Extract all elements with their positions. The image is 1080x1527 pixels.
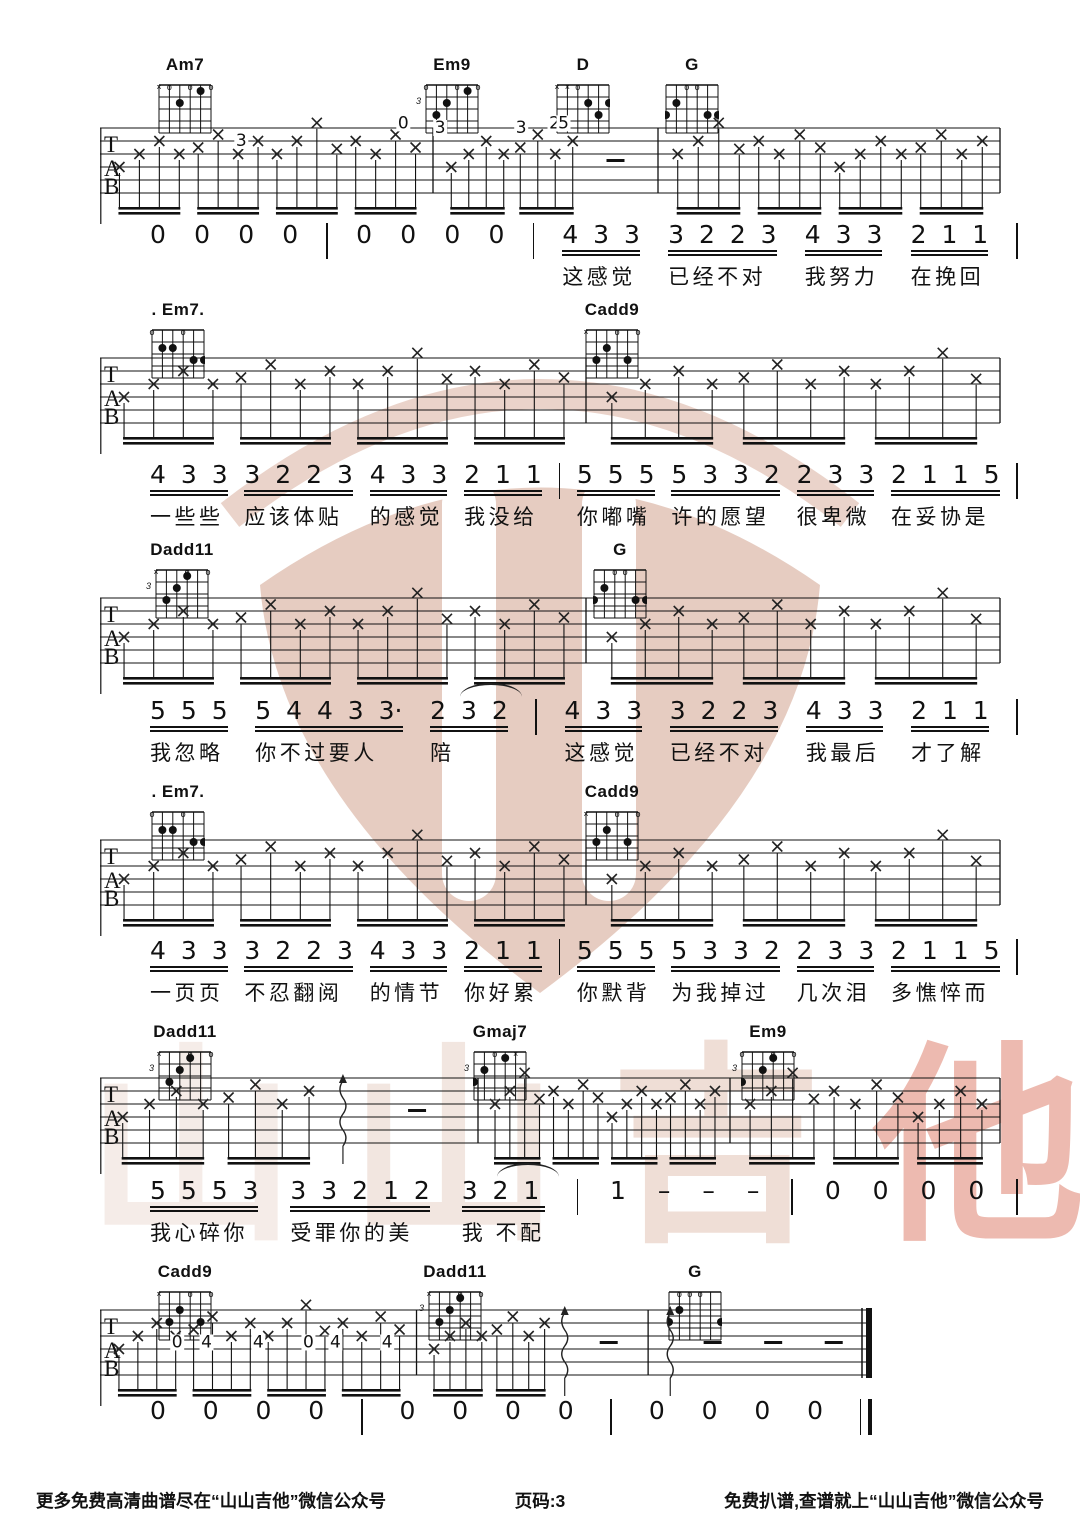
- melody-group: 4 3 3我最后: [806, 698, 884, 767]
- melody-group: 4 3 3的情节: [370, 938, 448, 1007]
- melody-group: 2 1 1 5在妥协是: [891, 462, 999, 531]
- jianpu-numbers: 0: [356, 222, 372, 248]
- jianpu-numbers: 4 3 3: [565, 698, 643, 724]
- lyric-text: 很卑微: [797, 501, 875, 531]
- finger-dot: [672, 99, 680, 107]
- melody-group: 0: [702, 1398, 718, 1424]
- hold-dash: [764, 1341, 782, 1344]
- jianpu-numbers: 0: [150, 222, 166, 248]
- tab-fret-number: 5: [558, 113, 569, 133]
- jianpu-numbers: 5 5 5: [150, 698, 228, 724]
- jianpu-numbers: 4 3 3: [370, 938, 448, 964]
- svg-text:B: B: [104, 174, 119, 199]
- jianpu-numbers: 3 2 2 3: [668, 222, 776, 248]
- barline: [361, 1399, 363, 1435]
- melody-group: 0: [968, 1178, 984, 1204]
- melody-group: 3 2 2 3不忍翻阅: [244, 938, 352, 1007]
- jianpu-numbers: 4 3 3: [150, 462, 228, 488]
- melody-group: 0: [238, 222, 254, 248]
- jianpu-numbers: 3 2 2 3: [244, 938, 352, 964]
- tab-staff: TAB: [100, 338, 1006, 456]
- melody-group: 5 4 4 3 3·你不过要人: [255, 698, 402, 767]
- lyric-text: 我心碎你: [150, 1217, 258, 1247]
- jianpu-numbers: 2 3 3: [797, 462, 875, 488]
- melody-group: 4 3 3一些些: [150, 462, 228, 531]
- chord-name: Dadd11: [153, 1022, 217, 1042]
- lyric-text: 陪: [430, 737, 508, 767]
- barline: [577, 1179, 579, 1215]
- jianpu-numbers: 0: [921, 1178, 937, 1204]
- jianpu-numbers: 0: [505, 1398, 521, 1424]
- melody-group: 0: [873, 1178, 889, 1204]
- string-markers: oo: [665, 83, 719, 92]
- lyric-text: 你默背: [577, 977, 655, 1007]
- svg-text:T: T: [104, 1082, 118, 1107]
- string-markers: oo: [151, 810, 205, 819]
- svg-text:B: B: [104, 886, 119, 911]
- tab-staff: TAB: [100, 578, 1006, 696]
- tab-fret-number: 3: [435, 118, 446, 138]
- chord-name: Dadd11: [150, 540, 214, 560]
- lyric-text: 我没给: [464, 501, 542, 531]
- string-markers: ×oo: [585, 810, 639, 819]
- melody-group: 0: [444, 222, 460, 248]
- hold-dash: [600, 1341, 618, 1344]
- tab-fret-number: 4: [253, 1333, 264, 1353]
- chord-name: . Em7.: [146, 782, 210, 802]
- hold-dash: [408, 1109, 426, 1112]
- jianpu-numbers: 0: [807, 1398, 823, 1424]
- jianpu-numbers: 0: [203, 1398, 219, 1424]
- chord-name: G: [660, 55, 724, 75]
- melody-group: 3 2 2 3已经不对: [668, 222, 776, 291]
- jianpu-numbers: 2 1 1 5: [891, 938, 999, 964]
- svg-text:T: T: [104, 1314, 118, 1339]
- string-markers: oo: [593, 568, 647, 577]
- jianpu-numbers: 0: [452, 1398, 468, 1424]
- melody-group: 0: [399, 1398, 415, 1424]
- lyric-text: 不忍翻阅: [244, 977, 352, 1007]
- chord-name: G: [663, 1262, 727, 1282]
- barline: [610, 1399, 612, 1435]
- lyric-text: 你不过要人: [255, 737, 402, 767]
- melody-group: 4 3 3这感觉: [565, 698, 643, 767]
- tab-staff: TAB: [100, 820, 1006, 938]
- lyric-text: 你嘟嘴: [577, 501, 655, 531]
- svg-text:T: T: [104, 602, 118, 627]
- finger-dot: [584, 99, 592, 107]
- lyric-text: 应该体贴: [244, 501, 352, 531]
- melody-group: 2 1 1才了解: [911, 698, 989, 767]
- vocal-line: 4 3 3一些些3 2 2 3应该体贴4 3 3的感觉2 1 1我没给5 5 5…: [150, 462, 1018, 531]
- tab-staff: TAB302335: [100, 108, 1006, 226]
- melody-group: 0: [282, 222, 298, 248]
- jianpu-numbers: 4 3 3: [150, 938, 228, 964]
- melody-group: 0: [921, 1178, 937, 1204]
- jianpu-numbers: 4 3 3: [805, 222, 883, 248]
- melody-group: 0: [400, 222, 416, 248]
- melody-group: 0: [150, 1398, 166, 1424]
- lyric-text: 这感觉: [565, 737, 643, 767]
- chord-name: Dadd11: [423, 1262, 487, 1282]
- chord-name: Em9: [420, 55, 484, 75]
- jianpu-numbers: 0: [558, 1398, 574, 1424]
- tab-staff: TAB044044: [100, 1290, 878, 1408]
- chord-name: Em9: [736, 1022, 800, 1042]
- tab-staff: TAB: [100, 1058, 1006, 1176]
- lyric-text: 为我掉过: [671, 977, 779, 1007]
- jianpu-numbers: 0: [649, 1398, 665, 1424]
- melody-group: 2 3 3很卑微: [797, 462, 875, 531]
- melody-group: 2 3 2陪: [430, 698, 508, 767]
- lyric-text: 在挽回: [911, 261, 989, 291]
- melody-group: 3 2 2 3已经不对: [670, 698, 778, 767]
- jianpu-numbers: –: [702, 1178, 715, 1204]
- barline: [1016, 939, 1018, 975]
- finger-dot: [605, 99, 610, 107]
- jianpu-numbers: 5 3 3 2: [671, 462, 779, 488]
- melody-group: 0: [194, 222, 210, 248]
- jianpu-numbers: 3 2 2 3: [670, 698, 778, 724]
- final-barline: [860, 1399, 872, 1435]
- sheet-music-page: 山山吉他 Am7×oooEm9ooo3D××oGooTAB30233500000…: [0, 0, 1080, 1527]
- jianpu-numbers: –: [658, 1178, 671, 1204]
- melody-group: 0: [649, 1398, 665, 1424]
- melody-group: 0: [558, 1398, 574, 1424]
- jianpu-numbers: 0: [238, 222, 254, 248]
- string-markers: ooo: [425, 83, 479, 92]
- tab-fret-number: 4: [201, 1333, 212, 1353]
- jianpu-numbers: 0: [194, 222, 210, 248]
- melody-group: 3 2 2 3应该体贴: [244, 462, 352, 531]
- barline: [1016, 463, 1018, 499]
- chord-name: Am7: [153, 55, 217, 75]
- lyric-text: 多憔悴而: [891, 977, 999, 1007]
- jianpu-numbers: 0: [702, 1398, 718, 1424]
- jianpu-numbers: 5 4 4 3 3·: [255, 698, 402, 724]
- vocal-line: 000000000000: [150, 1398, 872, 1435]
- score-content: Am7×oooEm9ooo3D××oGooTAB302335000000004 …: [0, 0, 1080, 1527]
- lyric-text: 一页页: [150, 977, 228, 1007]
- melody-group: 5 3 3 2为我掉过: [671, 938, 779, 1007]
- barline: [1016, 699, 1018, 735]
- lyric-text: 受罪你的美: [290, 1217, 429, 1247]
- jianpu-numbers: 2 3 3: [797, 938, 875, 964]
- lyric-text: 一些些: [150, 501, 228, 531]
- hold-dash: [607, 159, 625, 162]
- melody-group: –: [747, 1178, 760, 1204]
- jianpu-numbers: 2 1 1: [464, 938, 542, 964]
- lyric-text: 许的愿望: [671, 501, 779, 531]
- lyric-text: 这感觉: [562, 261, 640, 291]
- melody-group: 0: [754, 1398, 770, 1424]
- jianpu-numbers: 5 5 5: [577, 938, 655, 964]
- hold-dash: [825, 1341, 843, 1344]
- vocal-line: 5 5 5 3我心碎你3 3 2 1 2受罪你的美3 2 1我 不配1–––00…: [150, 1178, 1018, 1247]
- lyric-text: 我努力: [805, 261, 883, 291]
- melody-group: 0: [203, 1398, 219, 1424]
- jianpu-numbers: 2 1 1 5: [891, 462, 999, 488]
- melody-group: 2 1 1我没给: [464, 462, 542, 531]
- melody-group: 5 5 5你嘟嘴: [577, 462, 655, 531]
- jianpu-numbers: 0: [256, 1398, 272, 1424]
- jianpu-numbers: 4 3 3: [806, 698, 884, 724]
- vocal-line: 4 3 3一页页3 2 2 3不忍翻阅4 3 3的情节2 1 1你好累5 5 5…: [150, 938, 1018, 1007]
- jianpu-numbers: 2 3 2: [430, 698, 508, 724]
- svg-text:B: B: [104, 1356, 119, 1381]
- melody-group: 0: [488, 222, 504, 248]
- jianpu-numbers: 0: [488, 222, 504, 248]
- jianpu-numbers: 0: [400, 222, 416, 248]
- jianpu-numbers: 0: [825, 1178, 841, 1204]
- jianpu-numbers: 2 1 1: [911, 222, 989, 248]
- jianpu-numbers: 0: [282, 222, 298, 248]
- string-markers: ×oo: [155, 568, 209, 577]
- string-markers: oo: [151, 328, 205, 337]
- jianpu-numbers: 3 2 2 3: [244, 462, 352, 488]
- svg-text:B: B: [104, 1124, 119, 1149]
- chord-name: Cadd9: [153, 1262, 217, 1282]
- jianpu-numbers: 3 2 1: [462, 1178, 545, 1204]
- melody-group: 0: [150, 222, 166, 248]
- melody-group: 0: [807, 1398, 823, 1424]
- jianpu-numbers: 0: [968, 1178, 984, 1204]
- barline: [559, 939, 561, 975]
- jianpu-numbers: 4 3 3: [562, 222, 640, 248]
- finger-dot: [443, 99, 451, 107]
- melody-group: 3 2 1我 不配: [462, 1178, 545, 1247]
- barline: [559, 463, 561, 499]
- melody-group: 2 1 1在挽回: [911, 222, 989, 291]
- jianpu-numbers: 0: [150, 1398, 166, 1424]
- lyric-text: 才了解: [911, 737, 989, 767]
- tab-fret-number: 0: [398, 113, 409, 133]
- melody-group: 2 1 1你好累: [464, 938, 542, 1007]
- chord-name: G: [588, 540, 652, 560]
- melody-group: 0: [356, 222, 372, 248]
- jianpu-numbers: –: [747, 1178, 760, 1204]
- jianpu-numbers: 5 3 3 2: [671, 938, 779, 964]
- vocal-line: 5 5 5我忽略5 4 4 3 3·你不过要人2 3 2陪4 3 3这感觉3 2…: [150, 698, 1018, 767]
- melody-group: 3 3 2 1 2受罪你的美: [290, 1178, 429, 1247]
- melody-group: –: [702, 1178, 715, 1204]
- jianpu-numbers: 0: [308, 1398, 324, 1424]
- barline: [535, 699, 537, 735]
- tab-fret-number: 4: [330, 1333, 341, 1353]
- jianpu-numbers: 3 3 2 1 2: [290, 1178, 429, 1204]
- svg-text:B: B: [104, 644, 119, 669]
- chord-name: . Em7.: [146, 300, 210, 320]
- melody-group: 4 3 3这感觉: [562, 222, 640, 291]
- jianpu-numbers: 5 5 5: [577, 462, 655, 488]
- finger-dot: [176, 99, 184, 107]
- jianpu-numbers: 1: [610, 1178, 626, 1204]
- chord-name: Gmaj7: [468, 1022, 532, 1042]
- jianpu-numbers: 5 5 5 3: [150, 1178, 258, 1204]
- svg-text:T: T: [104, 132, 118, 157]
- jianpu-numbers: 2 1 1: [464, 462, 542, 488]
- svg-text:B: B: [104, 404, 119, 429]
- chord-name: Cadd9: [580, 782, 644, 802]
- lyric-text: 的感觉: [370, 501, 448, 531]
- melody-group: 5 3 3 2许的愿望: [671, 462, 779, 531]
- melody-group: 0: [825, 1178, 841, 1204]
- melody-group: 5 5 5 3我心碎你: [150, 1178, 258, 1247]
- barline: [533, 223, 535, 259]
- lyric-text: 你好累: [464, 977, 542, 1007]
- lyric-text: 几次泪: [797, 977, 875, 1007]
- jianpu-numbers: 0: [873, 1178, 889, 1204]
- barline: [326, 223, 328, 259]
- lyric-text: 已经不对: [670, 737, 778, 767]
- string-markers: ×ooo: [158, 83, 212, 92]
- fret-label: 3: [416, 96, 421, 106]
- jianpu-numbers: 0: [399, 1398, 415, 1424]
- melody-group: 5 5 5你默背: [577, 938, 655, 1007]
- tab-fret-number: 0: [172, 1333, 183, 1353]
- jianpu-numbers: 0: [444, 222, 460, 248]
- tab-fret-number: 0: [303, 1333, 314, 1353]
- melody-group: 0: [308, 1398, 324, 1424]
- barline: [791, 1179, 793, 1215]
- barline: [1016, 1179, 1018, 1215]
- lyric-text: 我 不配: [462, 1217, 545, 1247]
- melody-group: –: [658, 1178, 671, 1204]
- tab-fret-number: 3: [236, 131, 247, 151]
- jianpu-numbers: 4 3 3: [370, 462, 448, 488]
- svg-text:T: T: [104, 844, 118, 869]
- lyric-text: 在妥协是: [891, 501, 999, 531]
- string-markers: ××o: [556, 83, 610, 92]
- melody-group: 4 3 3的感觉: [370, 462, 448, 531]
- jianpu-numbers: 0: [754, 1398, 770, 1424]
- melody-group: 0: [505, 1398, 521, 1424]
- melody-group: 4 3 3一页页: [150, 938, 228, 1007]
- melody-group: 5 5 5我忽略: [150, 698, 228, 767]
- vocal-line: 000000004 3 3这感觉3 2 2 3已经不对4 3 3我努力2 1 1…: [150, 222, 1018, 291]
- lyric-text: 已经不对: [668, 261, 776, 291]
- melody-group: 2 1 1 5多憔悴而: [891, 938, 999, 1007]
- lyric-text: 我最后: [806, 737, 884, 767]
- jianpu-numbers: 2 1 1: [911, 698, 989, 724]
- lyric-text: 我忽略: [150, 737, 228, 767]
- chord-name: Cadd9: [580, 300, 644, 320]
- svg-text:T: T: [104, 362, 118, 387]
- melody-group: 0: [256, 1398, 272, 1424]
- melody-group: 2 3 3几次泪: [797, 938, 875, 1007]
- string-markers: ×oo: [585, 328, 639, 337]
- tab-fret-number: 4: [382, 1333, 393, 1353]
- barline: [1016, 223, 1018, 259]
- lyric-text: 的情节: [370, 977, 448, 1007]
- hold-dash: [704, 1341, 722, 1344]
- melody-group: 4 3 3我努力: [805, 222, 883, 291]
- melody-group: 0: [452, 1398, 468, 1424]
- melody-group: 1: [610, 1178, 626, 1204]
- chord-name: D: [551, 55, 615, 75]
- tab-fret-number: 3: [516, 118, 527, 138]
